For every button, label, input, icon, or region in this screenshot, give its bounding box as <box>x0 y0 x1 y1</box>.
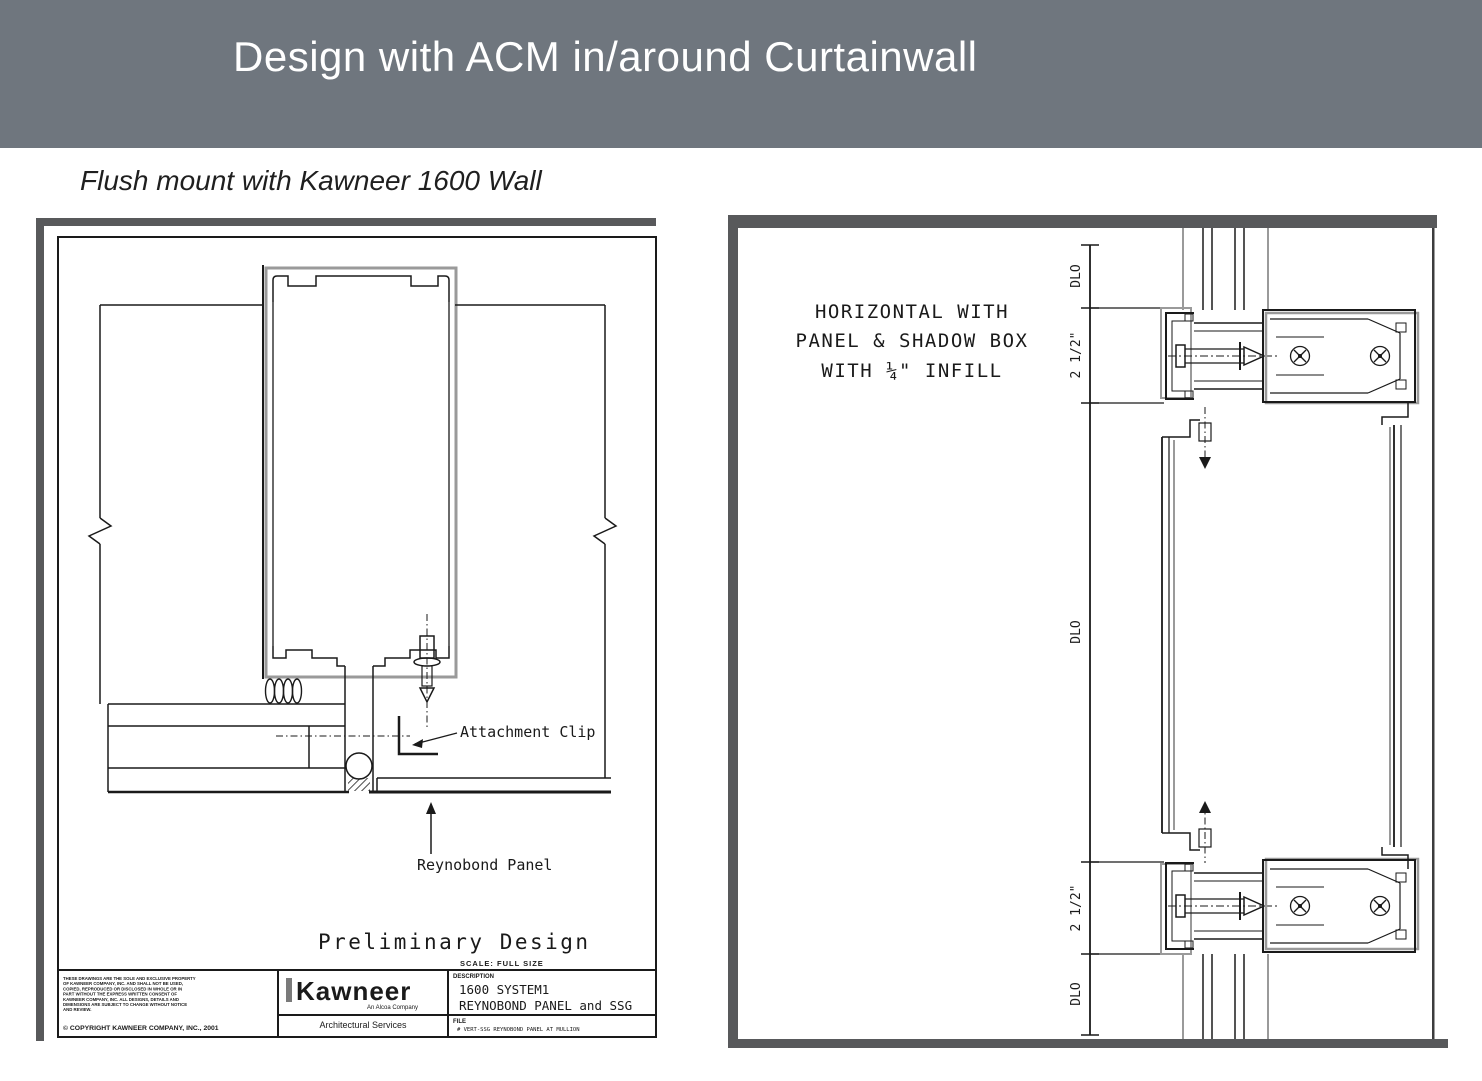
up-arrowhead <box>426 802 436 814</box>
slide-title: Design with ACM in/around Curtainwall <box>233 33 978 81</box>
brand-dept: Architectural Services <box>319 1020 407 1030</box>
description-line2: REYNOBOND PANEL and SSG <box>459 998 632 1013</box>
thermal-break-gasket <box>346 753 372 779</box>
header-band: Design with ACM in/around Curtainwall <box>0 0 1482 148</box>
svg-text:WITH ¼" INFILL: WITH ¼" INFILL <box>821 360 1002 382</box>
kawneer-logo: Kawneer <box>296 976 411 1006</box>
break-symbol-right <box>594 518 616 544</box>
svg-text:AND REVIEW.: AND REVIEW. <box>63 1007 91 1012</box>
sight-lines <box>89 305 616 778</box>
attachment-clip <box>276 716 457 754</box>
dim-2half-bottom: 2 1/2" <box>1069 885 1084 932</box>
slide: Design with ACM in/around Curtainwall Fl… <box>0 0 1482 1081</box>
outer-panel-face <box>1382 403 1408 869</box>
shadow-box-channel <box>1162 407 1211 863</box>
dim-2half-top: 2 1/2" <box>1069 332 1084 379</box>
left-drawing-frame <box>36 218 656 1041</box>
file-value: # VERT-SSG REYNOBOND PANEL AT MULLION <box>457 1027 580 1033</box>
slide-subtitle: Flush mount with Kawneer 1600 Wall <box>80 165 542 197</box>
dim-dlo-top: DLO <box>1069 264 1084 288</box>
copyright-line: © COPYRIGHT KAWNEER COMPANY, INC., 2001 <box>63 1024 219 1032</box>
clip-screw-bottom <box>1199 801 1211 813</box>
horizontal-mullion-top <box>1161 308 1418 403</box>
disclaimer-text: THESE DRAWINGS ARE THE SOLE AND EXCLUSIV… <box>63 976 196 1012</box>
left-cad-drawing: Attachment Clip Reynobond Panel Prelimin… <box>36 218 676 1043</box>
dimension-labels: DLO 2 1/2" DLO 2 1/2" DLO <box>1069 264 1084 1006</box>
brand-tagline: An Alcoa Company <box>367 1005 418 1011</box>
dimension-string <box>1081 245 1164 1035</box>
dim-dlo-bottom: DLO <box>1069 982 1084 1006</box>
kawneer-logo-bar <box>286 978 292 1002</box>
svg-text:PANEL & SHADOW BOX: PANEL & SHADOW BOX <box>796 330 1029 352</box>
clip-screw-top <box>1199 457 1211 469</box>
break-symbol-left <box>89 518 111 544</box>
leader-arrowhead <box>412 739 423 748</box>
drawing-title: Preliminary Design <box>318 930 591 954</box>
description-line1: 1600 SYSTEM1 <box>459 982 549 997</box>
scale-note: SCALE: FULL SIZE <box>460 959 544 968</box>
horizontal-mullion-bottom <box>1161 859 1418 954</box>
reynobond-panel-label: Reynobond Panel <box>417 856 552 874</box>
svg-text:HORIZONTAL WITH: HORIZONTAL WITH <box>815 301 1009 323</box>
description-label: DESCRIPTION <box>453 974 494 980</box>
section-caption: HORIZONTAL WITH PANEL & SHADOW BOX WITH … <box>796 301 1029 382</box>
fastener-bolt <box>414 614 440 730</box>
right-cad-drawing: HORIZONTAL WITH PANEL & SHADOW BOX WITH … <box>728 215 1482 1055</box>
glass-bottom <box>1183 954 1268 1039</box>
glass-top <box>1183 228 1268 310</box>
attachment-clip-label: Attachment Clip <box>460 723 595 741</box>
reynobond-arrow <box>426 802 436 854</box>
gasket-coil <box>266 679 302 703</box>
file-label: FILE <box>453 1019 466 1025</box>
dim-dlo-mid: DLO <box>1069 620 1084 644</box>
